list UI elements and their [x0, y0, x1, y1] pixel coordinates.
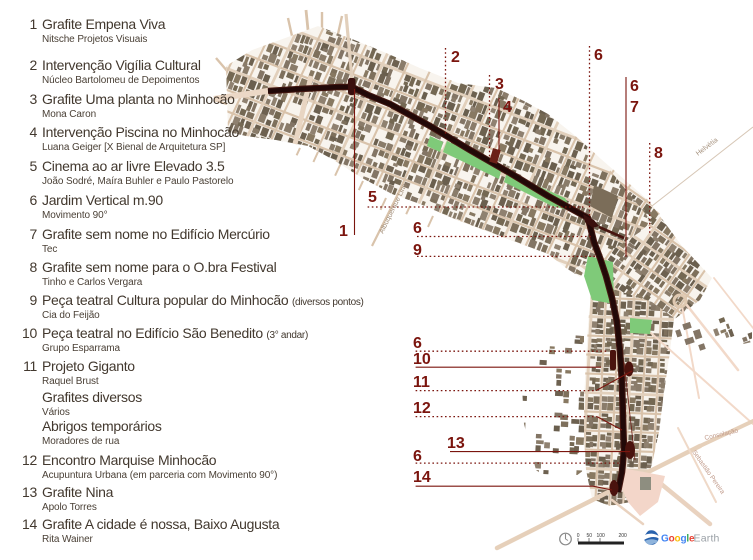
- svg-text:5: 5: [368, 189, 377, 206]
- svg-text:Consolação: Consolação: [704, 427, 739, 442]
- svg-text:6: 6: [413, 220, 422, 237]
- svg-text:50: 50: [587, 533, 593, 539]
- svg-text:11: 11: [413, 374, 430, 391]
- svg-text:6: 6: [630, 78, 639, 95]
- svg-text:Google: Google: [661, 533, 695, 544]
- svg-text:100: 100: [597, 533, 606, 539]
- svg-text:200: 200: [619, 533, 628, 539]
- svg-text:Earth: Earth: [694, 532, 720, 544]
- svg-text:6: 6: [413, 448, 422, 465]
- svg-text:3: 3: [495, 76, 504, 93]
- svg-text:14: 14: [413, 469, 431, 486]
- svg-text:0: 0: [577, 533, 580, 539]
- svg-text:Helvétia: Helvétia: [695, 137, 719, 158]
- svg-text:12: 12: [413, 400, 431, 417]
- svg-text:1: 1: [339, 223, 348, 240]
- svg-text:6: 6: [594, 47, 603, 64]
- svg-text:8: 8: [654, 145, 663, 162]
- svg-text:9: 9: [413, 242, 422, 259]
- svg-text:7: 7: [630, 99, 639, 116]
- svg-text:4: 4: [503, 99, 512, 116]
- svg-text:10: 10: [413, 351, 431, 368]
- svg-text:13: 13: [447, 435, 465, 452]
- svg-text:6: 6: [413, 335, 422, 352]
- svg-text:2: 2: [451, 49, 460, 66]
